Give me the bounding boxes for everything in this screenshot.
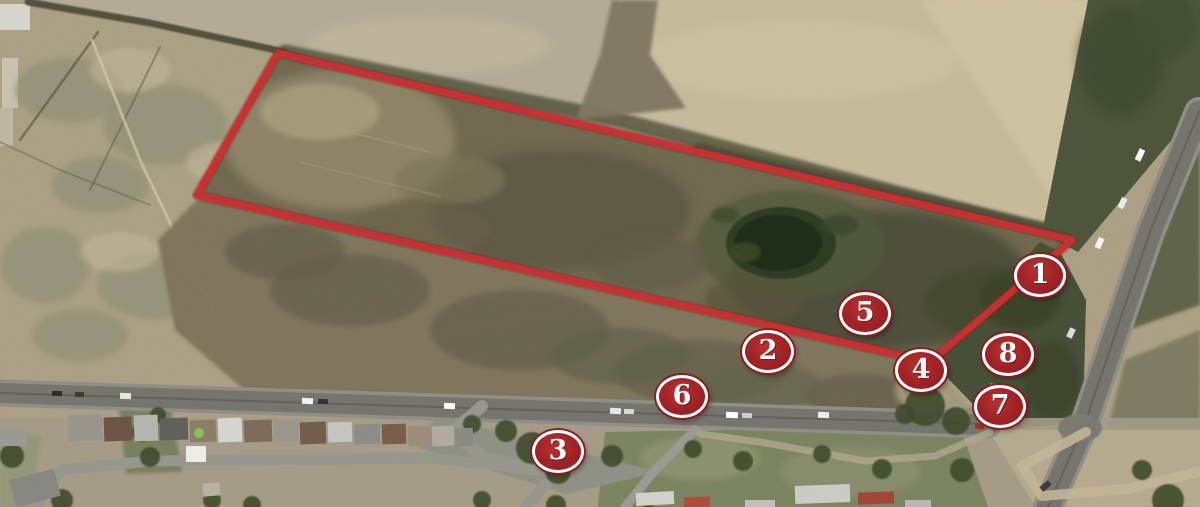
photo-grain (0, 0, 1200, 507)
satellite-canvas (0, 0, 1200, 507)
property-aerial-photo: 12345678 (0, 0, 1200, 507)
terrain-layer (0, 0, 1200, 507)
